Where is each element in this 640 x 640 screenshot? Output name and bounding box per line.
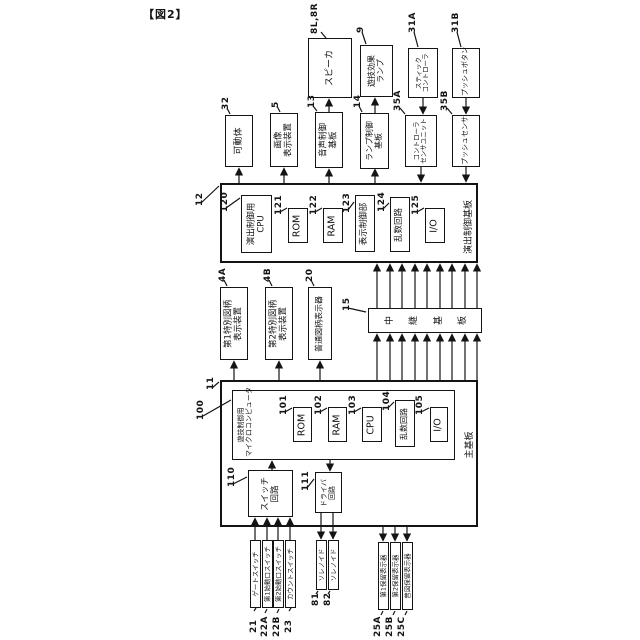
box-display-control-unit: 表示制御部	[355, 195, 375, 252]
box-normal-symbol-display: 普通図柄表示器	[308, 287, 332, 360]
box-special-symbol-display-2: 第2特別図柄表示装置	[265, 287, 293, 360]
start-switch-1-text: 第1始動口スイッチ	[264, 542, 271, 606]
ref-image-display-device: 5	[271, 101, 281, 108]
speaker-text: スピーカ	[325, 40, 335, 96]
label-microcomputer-name: 遊技制御用マイクロコンピュータ	[234, 391, 258, 459]
relay-board-text: 中継基板	[369, 309, 481, 332]
box-main-random-circuit: 乱数回路	[395, 400, 415, 447]
box-effect-rom: ROM	[288, 208, 308, 243]
effect-io-text: I/O	[430, 210, 441, 241]
gate-switch-text: ゲートスイッチ	[252, 542, 259, 606]
ref-hold-display-1: 25A	[373, 616, 383, 637]
hold-display-2-text: 第2保留表示器	[392, 544, 399, 608]
stick-controller-text: スティックコントローラ	[416, 50, 431, 96]
count-switch-text: カウントスイッチ	[287, 542, 294, 606]
ref-push-sensor: 35B	[440, 90, 450, 111]
ref-switch-circuit: 110	[227, 467, 237, 487]
box-main-rom: ROM	[293, 407, 312, 442]
effect-ram-text: RAM	[328, 210, 339, 241]
hold-display-1-text: 第1保留表示器	[380, 544, 387, 608]
ref-effect-control-board: 12	[195, 192, 205, 206]
ref-main-board: 11	[206, 376, 216, 390]
patent-figure-2: 【図2】 1211100スピーカ8L,8R遊技効果ランプ9スティックコントローラ…	[0, 0, 640, 640]
box-game-effect-lamp: 遊技効果ランプ	[360, 45, 393, 97]
driver-circuit-text: ドライバ回路	[321, 474, 337, 511]
effect-control-cpu-text: 演出制御用CPU	[247, 197, 266, 251]
ref-main-rom: 101	[279, 395, 289, 415]
movable-body-text: 可動体	[234, 117, 244, 165]
ref-effect-random-circuit: 124	[377, 192, 387, 212]
box-start-switch-2: 第2始動口スイッチ	[273, 540, 284, 608]
main-cpu-text: CPU	[367, 409, 378, 440]
main-io-text: I/O	[434, 409, 445, 440]
lamp-control-board-text: ランプ制御基板	[366, 115, 384, 167]
box-effect-io: I/O	[425, 208, 445, 243]
box-controller-sensor-unit: コントローラセンサユニット	[405, 115, 437, 167]
box-main-cpu: CPU	[362, 407, 382, 442]
ref-main-random-circuit: 104	[382, 391, 392, 411]
box-main-ram: RAM	[328, 407, 347, 442]
ref-main-io: 105	[415, 395, 425, 415]
ref-hold-display-2: 25B	[385, 616, 395, 637]
ref-speaker: 8L,8R	[310, 3, 320, 34]
box-count-switch: カウントスイッチ	[285, 540, 296, 608]
main-random-circuit-text: 乱数回路	[401, 402, 410, 445]
switch-circuit-text: スイッチ回路	[261, 472, 280, 515]
ref-controller-sensor-unit: 35A	[393, 90, 403, 111]
sound-control-board-text: 音声制御基板	[319, 114, 338, 166]
ref-push-button: 31B	[451, 12, 461, 33]
box-relay-board: 中継基板	[368, 308, 482, 333]
box-gate-switch: ゲートスイッチ	[250, 540, 261, 608]
box-sound-control-board: 音声制御基板	[315, 112, 343, 168]
image-display-device-text: 画像表示装置	[274, 115, 293, 165]
special-symbol-display-1-text: 第1特別図柄表示装置	[224, 289, 243, 358]
effect-control-board-name-text: 演出制御基板	[464, 198, 474, 256]
ref-game-effect-lamp: 9	[356, 26, 366, 33]
solenoid-2-text: ソレノイド	[330, 542, 337, 588]
ref-sound-control-board: 13	[307, 94, 317, 108]
solenoid-1-text: ソレノイド	[318, 542, 325, 588]
ref-hold-display-3: 25C	[397, 616, 407, 637]
effect-rom-text: ROM	[293, 210, 304, 241]
ref-solenoid-2: 82	[323, 592, 333, 606]
effect-random-circuit-text: 乱数回路	[395, 199, 405, 250]
box-push-button: プッシュボタン	[452, 48, 480, 98]
ref-game-control-microcomputer: 100	[196, 400, 206, 420]
push-sensor-text: プッシュセンサ	[462, 117, 470, 165]
main-rom-text: ROM	[297, 409, 308, 440]
ref-special-symbol-display-1: 4A	[218, 268, 228, 282]
box-solenoid-2: ソレノイド	[328, 540, 339, 590]
display-control-unit-text: 表示制御部	[360, 197, 370, 250]
label-main-board-name: 主基板	[463, 426, 477, 464]
start-switch-2-text: 第2始動口スイッチ	[275, 542, 282, 606]
normal-symbol-display-text: 普通図柄表示器	[316, 289, 325, 358]
ref-main-cpu: 103	[348, 395, 358, 415]
controller-sensor-unit-text: コントローラセンサユニット	[414, 117, 429, 165]
box-image-display-device: 画像表示装置	[270, 113, 298, 167]
box-effect-ram: RAM	[323, 208, 343, 243]
hold-display-3-text: 普図保留表示器	[404, 544, 411, 608]
ref-solenoid-1: 81	[311, 592, 321, 606]
ref-start-switch-1: 22A	[260, 616, 270, 637]
ref-start-switch-2: 22B	[272, 616, 282, 637]
microcomputer-name-text: 遊技制御用マイクロコンピュータ	[238, 393, 254, 457]
ref-driver-circuit: 111	[301, 471, 311, 491]
box-solenoid-1: ソレノイド	[316, 540, 327, 590]
game-effect-lamp-text: 遊技効果ランプ	[368, 47, 386, 95]
ref-lamp-control-board: 14	[353, 94, 363, 108]
ref-gate-switch: 21	[249, 619, 259, 633]
main-ram-text: RAM	[332, 409, 343, 440]
box-lamp-control-board: ランプ制御基板	[360, 113, 389, 169]
special-symbol-display-2-text: 第2特別図柄表示装置	[269, 289, 288, 358]
ref-main-ram: 102	[314, 395, 324, 415]
push-button-text: プッシュボタン	[462, 50, 470, 96]
ref-stick-controller: 31A	[408, 12, 418, 33]
box-switch-circuit: スイッチ回路	[248, 470, 293, 517]
box-movable-body: 可動体	[225, 115, 253, 167]
box-push-sensor: プッシュセンサ	[452, 115, 480, 167]
ref-normal-symbol-display: 20	[305, 268, 315, 282]
box-driver-circuit: ドライバ回路	[315, 472, 342, 513]
box-speaker: スピーカ	[308, 38, 352, 98]
box-effect-control-cpu: 演出制御用CPU	[241, 195, 272, 253]
ref-effect-io: 125	[411, 195, 421, 215]
box-stick-controller: スティックコントローラ	[408, 48, 438, 98]
ref-count-switch: 23	[284, 619, 294, 633]
box-main-io: I/O	[430, 407, 448, 442]
ref-relay-board: 15	[342, 297, 352, 311]
box-start-switch-1: 第1始動口スイッチ	[262, 540, 273, 608]
label-effect-control-board-name: 演出制御基板	[461, 196, 477, 258]
ref-effect-ram: 122	[309, 195, 319, 215]
ref-effect-rom: 121	[274, 195, 284, 215]
box-hold-display-3: 普図保留表示器	[402, 542, 413, 610]
ref-effect-control-cpu: 120	[220, 192, 230, 212]
ref-movable-body: 32	[221, 96, 231, 110]
box-effect-random-circuit: 乱数回路	[390, 197, 410, 252]
main-board-name-text: 主基板	[465, 428, 475, 462]
box-hold-display-2: 第2保留表示器	[390, 542, 401, 610]
ref-display-control-unit: 123	[342, 193, 352, 213]
box-hold-display-1: 第1保留表示器	[378, 542, 389, 610]
box-special-symbol-display-1: 第1特別図柄表示装置	[220, 287, 248, 360]
figure-title: 【図2】	[143, 6, 188, 22]
ref-special-symbol-display-2: 4B	[263, 268, 273, 282]
